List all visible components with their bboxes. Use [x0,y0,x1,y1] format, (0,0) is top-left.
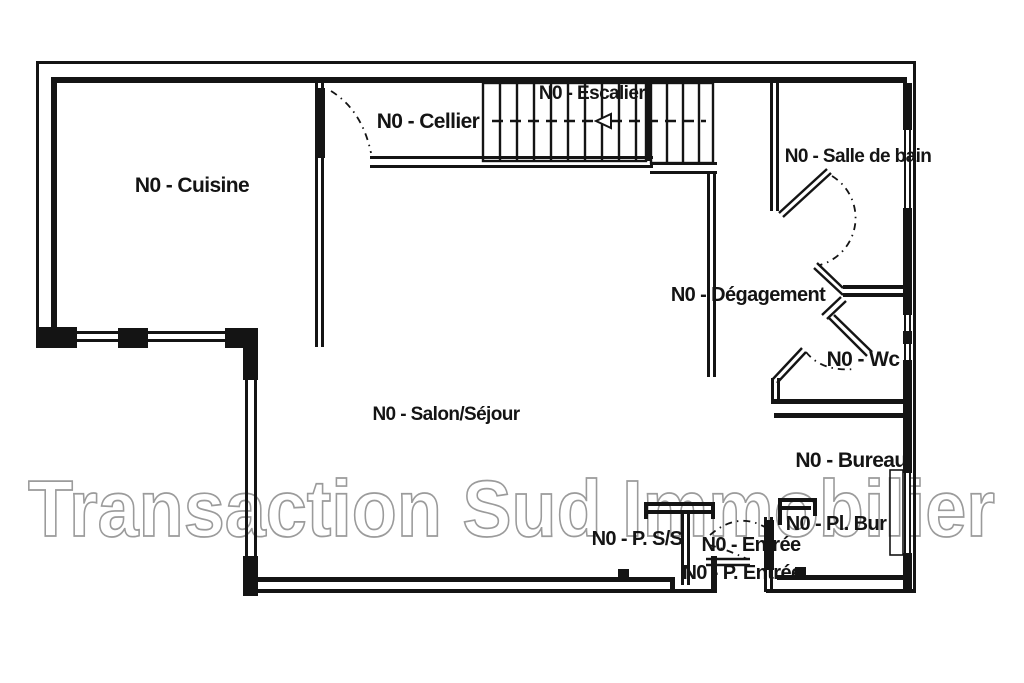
room-label-salle-de-bain: N0 - Salle de bain [785,146,932,167]
wc-corner-wall [772,348,806,383]
room-label-entree: N0 - Entrée [702,534,801,556]
floorplan-page: Transaction Sud Immobilier [0,0,1024,683]
bathroom-door-leaf [779,169,831,217]
agency-watermark: Transaction Sud Immobilier [28,464,995,553]
room-label-degagement: N0 - Dégagement [671,284,826,306]
salon-window [245,380,248,556]
cellier-door-swing [331,91,371,153]
stair-treads-run2 [667,83,699,163]
room-label-salon-sejour: N0 - Salon/Séjour [372,404,520,425]
bathroom-door-swing [820,176,856,265]
stair-direction-arrow-icon [596,114,611,128]
room-label-escalier: N0 - Escalier [539,83,646,104]
room-label-pl-bur: N0 - Pl. Bur [786,513,887,535]
cellier-door-leaf [316,88,325,158]
room-label-cellier: N0 - Cellier [377,110,480,133]
room-label-p-entree: N0 - P. Entrée [682,562,802,584]
room-label-cuisine: N0 - Cuisine [135,174,249,197]
room-label-wc: N0 - Wc [827,348,901,371]
room-label-bureau: N0 - Bureau [795,449,906,472]
room-label-p-ss: N0 - P. S/S [592,528,683,550]
floorplan-drawing: Transaction Sud Immobilier [0,0,1024,683]
